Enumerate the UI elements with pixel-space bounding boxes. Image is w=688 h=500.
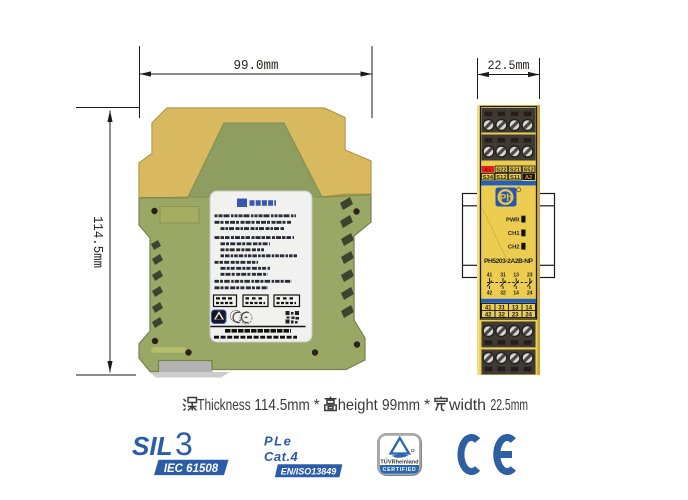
svg-text:S11: S11 bbox=[510, 175, 521, 181]
svg-text:CH1: CH1 bbox=[508, 231, 520, 237]
svg-text:A2: A2 bbox=[525, 175, 532, 181]
svg-text:A1: A1 bbox=[484, 168, 492, 174]
svg-text:41: 41 bbox=[487, 273, 493, 279]
svg-text:13: 13 bbox=[512, 305, 519, 311]
svg-text:*: * bbox=[314, 397, 320, 414]
svg-text:PWR: PWR bbox=[506, 217, 520, 223]
svg-text:14: 14 bbox=[513, 291, 519, 297]
svg-text:IEC 61508: IEC 61508 bbox=[164, 463, 219, 475]
svg-text:height: height bbox=[338, 397, 379, 414]
svg-text:42: 42 bbox=[487, 291, 493, 297]
svg-text:S21: S21 bbox=[510, 168, 521, 174]
svg-text:23: 23 bbox=[512, 312, 519, 318]
svg-text:31: 31 bbox=[500, 273, 506, 279]
svg-text:99.0mm: 99.0mm bbox=[234, 59, 279, 74]
svg-text:3: 3 bbox=[175, 426, 193, 462]
svg-text:114.5mm: 114.5mm bbox=[254, 397, 309, 414]
svg-text:PH5203-2A2B-NP: PH5203-2A2B-NP bbox=[484, 258, 534, 265]
svg-text:S22: S22 bbox=[496, 168, 506, 174]
svg-text:S34: S34 bbox=[483, 175, 494, 181]
svg-text:24: 24 bbox=[527, 291, 533, 297]
svg-text:EN/ISO13849: EN/ISO13849 bbox=[281, 466, 337, 476]
svg-text:CERTIFIED: CERTIFIED bbox=[383, 467, 417, 473]
svg-text:114.5mm: 114.5mm bbox=[89, 216, 104, 268]
svg-text:S12: S12 bbox=[496, 175, 506, 181]
svg-text:23: 23 bbox=[527, 273, 533, 279]
svg-text:width: width bbox=[448, 397, 486, 414]
svg-text:Thickness: Thickness bbox=[197, 397, 251, 414]
svg-text:24: 24 bbox=[525, 312, 532, 318]
svg-text:32: 32 bbox=[498, 312, 505, 318]
svg-text:TÜVRheinland: TÜVRheinland bbox=[380, 458, 419, 465]
svg-text:41: 41 bbox=[485, 305, 492, 311]
svg-text:32: 32 bbox=[500, 291, 506, 297]
svg-text:31: 31 bbox=[498, 305, 505, 311]
svg-text:22.5mm: 22.5mm bbox=[488, 58, 530, 73]
svg-text:PLe: PLe bbox=[264, 434, 292, 449]
svg-text:*: * bbox=[424, 397, 430, 414]
svg-text:Cat.4: Cat.4 bbox=[264, 449, 299, 464]
svg-text:SIL: SIL bbox=[132, 431, 172, 461]
svg-text:99mm: 99mm bbox=[382, 397, 420, 414]
svg-text:Ph: Ph bbox=[500, 193, 513, 204]
svg-text:22.5mm: 22.5mm bbox=[491, 397, 529, 414]
svg-text:S52: S52 bbox=[523, 168, 533, 174]
svg-text:14: 14 bbox=[525, 305, 532, 311]
svg-text:13: 13 bbox=[513, 273, 519, 279]
svg-text:CH2: CH2 bbox=[508, 244, 520, 250]
svg-text:42: 42 bbox=[485, 312, 492, 318]
